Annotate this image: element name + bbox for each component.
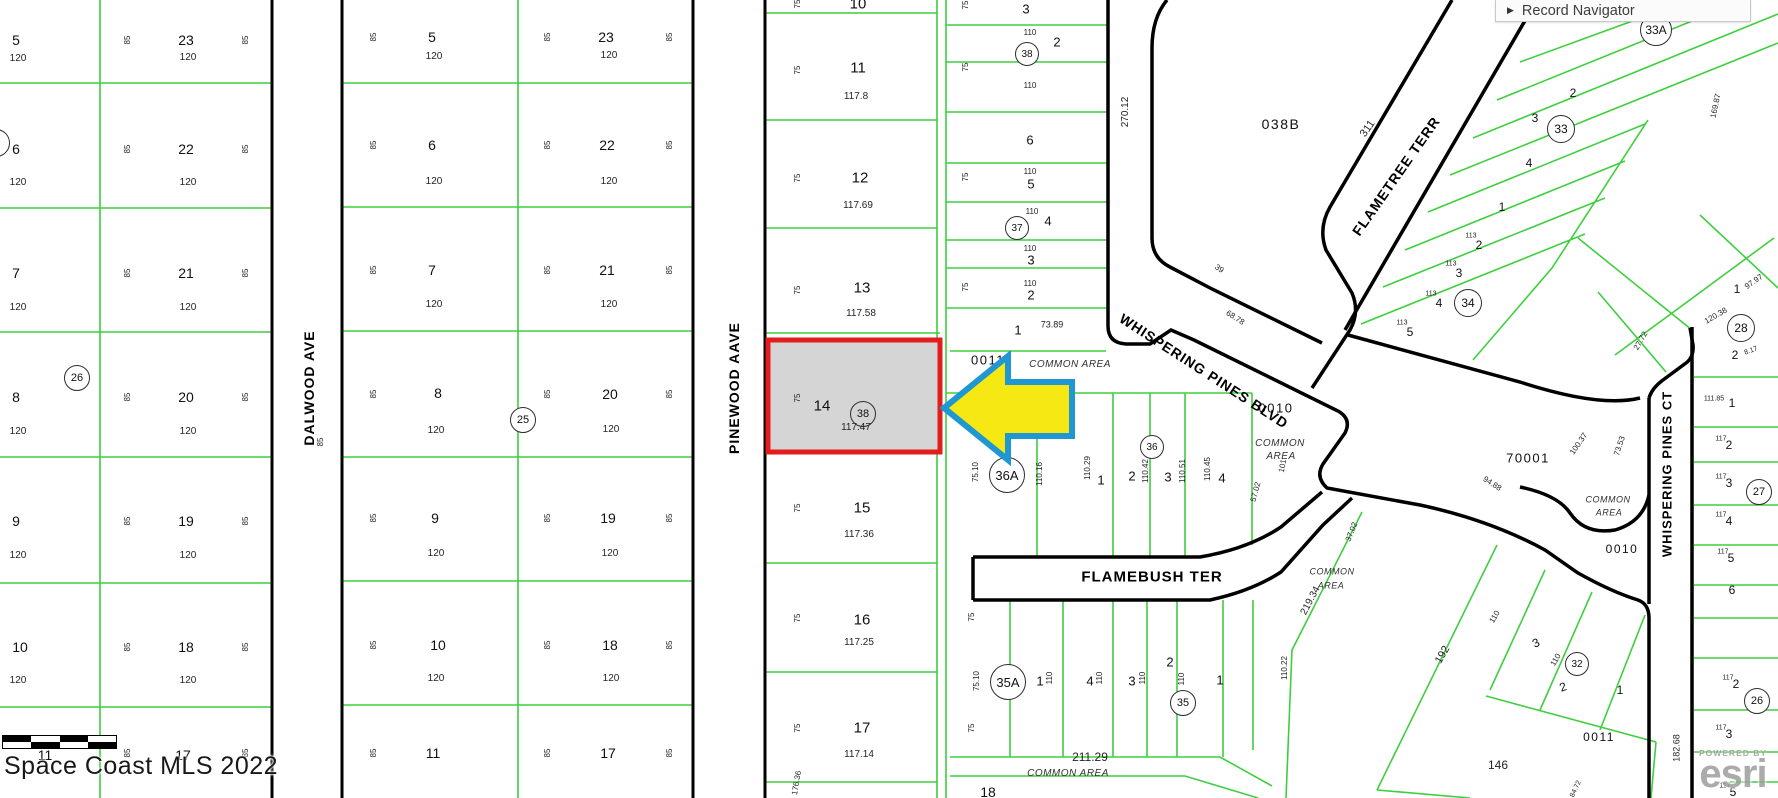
block-number-circle: 38 [1015,42,1039,66]
dimension-label: 85 [124,269,132,278]
lot-number-label: 8 [434,386,442,400]
dimension-label: 270.12 [1121,97,1131,128]
dimension-label: 120 [601,177,618,187]
dimension-label: 85 [242,269,250,278]
lot-number-label: 3 [1164,471,1171,484]
lot-number-label: 1 [1014,324,1021,337]
dimension-label: 120 [10,427,27,437]
lot-number-label: 10 [12,640,28,654]
lot-number-label: 3 [1128,675,1135,688]
lot-number-label: 1 [1499,201,1506,213]
lot-number-label: 18 [178,640,194,654]
dimension-label: 85 [544,641,552,650]
common-area-label: COMMON AREA [1029,360,1111,370]
block-number-circle: 28 [1727,314,1755,342]
tract-number-label: 0011 [971,354,1005,367]
lot-number-label: 1 [1216,674,1223,687]
lot-number-label: 6 [1729,584,1736,596]
dimension-label: 117.36 [844,530,874,540]
street-name-label: DALWOOD AVE [302,330,316,445]
dimension-label: 117 [1717,549,1728,556]
block-number-circle: 25 [510,407,536,433]
dimension-label: 120 [426,52,443,62]
dimension-label: 120 [428,426,445,436]
dimension-label: 85 [124,643,132,652]
lot-number-label: 10 [850,0,867,12]
lot-number-label: 5 [12,33,20,47]
dimension-label: 85 [124,517,132,526]
dimension-label: 110 [1178,673,1186,686]
dimension-label: 110 [1024,29,1037,37]
record-navigator-label: Record Navigator [1522,3,1635,19]
common-area-label: AREA [1266,452,1295,462]
plat-map-canvas[interactable]: 5678910111201201201201201202322212019181… [0,0,1778,798]
dimension-label: 111.85 [1704,396,1724,403]
dimension-label: 113 [1425,291,1436,298]
dimension-label: 117 [1715,436,1726,443]
lot-number-label: 3 [1726,728,1733,740]
common-area-label: COMMON AREA [1027,769,1109,779]
lot-number-label: 11 [426,746,441,760]
dimension-label: 85 [544,514,552,523]
lot-number-label: 1 [1617,684,1624,696]
dimension-label: 75 [794,174,802,183]
dimension-label: 110.51 [1179,459,1187,483]
dimension-label: 146 [1488,759,1508,771]
lot-number-label: 13 [854,281,871,296]
esri-logo: POWERED BY esri [1688,748,1778,791]
lot-number-label: 2 [1128,470,1135,483]
dimension-label: 85 [544,33,552,42]
dimension-label: 85 [124,36,132,45]
lot-number-label: 17 [854,721,871,736]
block-number-circle: 38 [850,401,876,427]
lot-number-label: 17 [600,746,616,760]
dimension-label: 75 [794,286,802,295]
lot-number-label: 5 [428,30,436,44]
block-number-circle: 35A [990,664,1026,700]
lot-number-label: 11 [850,61,866,76]
lot-number-label: 23 [178,33,194,47]
dimension-label: 75.10 [972,462,980,482]
lot-number-label: 18 [602,638,618,652]
dimension-label: 75 [962,1,970,10]
lot-number-label: 3 [1726,477,1733,489]
lot-number-label: 7 [12,266,20,280]
dimension-label: 120 [10,303,27,313]
dimension-label: 120 [602,549,619,559]
dimension-label: 117 [1715,725,1726,732]
dimension-label: 211.29 [1072,751,1108,763]
dimension-label: 85 [666,749,674,758]
dimension-label: 110 [1024,168,1037,176]
lot-number-label: 21 [178,266,194,280]
common-area-label: AREA [1318,582,1345,591]
lot-number-label: 1 [1097,474,1104,487]
dimension-label: 110 [1139,672,1147,685]
dimension-label: 120 [601,51,618,61]
dimension-label: 75 [962,173,970,182]
dimension-label: 120 [180,676,197,686]
dimension-label: 113 [1445,261,1456,268]
mls-watermark: Space Coast MLS 2022 [4,752,278,781]
dimension-label: 117 [1715,474,1726,481]
street-name-label: WHISPERING PINES CT [1661,391,1674,557]
lot-number-label: 15 [854,501,871,516]
lot-number-label: 10 [430,638,446,652]
dimension-label: 85 [242,643,250,652]
lot-number-label: 5 [1027,178,1034,191]
dimension-label: 120 [603,425,620,435]
dimension-label: 110.42 [1142,459,1150,483]
dimension-label: 85 [124,393,132,402]
dimension-label: 85 [370,641,378,650]
lot-number-label: 12 [852,171,869,186]
dimension-label: 120 [10,676,27,686]
lot-number-label: 2 [1053,36,1060,49]
dimension-label: 75 [794,0,802,8]
dimension-label: 120 [428,549,445,559]
dimension-label: 117.25 [844,638,874,648]
common-area-label: COMMON [1310,568,1355,577]
lot-number-label: 16 [854,613,871,628]
dimension-label: 85 [370,749,378,758]
lot-number-label: 22 [178,142,194,156]
tract-number-label: 0011 [1583,731,1615,743]
lot-number-label: 2 [1166,656,1173,669]
block-number-circle: 27 [1746,479,1772,505]
dimension-label: 73.89 [1041,321,1064,330]
tract-number-label: 70001 [1506,452,1550,465]
lot-number-label: 3 [1456,267,1463,279]
lot-number-label: 18 [980,785,996,798]
common-area-label: COMMON [1255,439,1305,449]
lot-number-label: 8 [12,390,20,404]
lot-number-label: 19 [178,514,194,528]
dimension-label: 85 [242,145,250,154]
dimension-label: 120 [180,551,197,561]
lot-number-label: 5 [1728,552,1735,564]
dimension-label: 120 [428,674,445,684]
lot-number-label: 20 [178,390,194,404]
lot-number-label: 9 [431,511,439,525]
lot-number-label: 23 [598,30,614,44]
lot-number-label: 4 [1044,215,1051,228]
lot-number-label: 4 [1086,675,1093,688]
dimension-label: 75 [794,66,802,75]
block-number-circle: 32 [1565,652,1589,676]
lot-number-label: 4 [1526,157,1533,169]
dimension-label: 113 [1465,233,1476,240]
lot-number-label: 2 [1476,239,1483,251]
block-number-circle: 26 [1744,688,1770,714]
dimension-label: 110 [1024,82,1037,90]
dimension-label: 117.8 [844,92,868,102]
dimension-label: 120 [10,551,27,561]
dimension-label: 75 [968,613,976,622]
dimension-label: 85 [370,266,378,275]
dimension-label: 85 [370,33,378,42]
street-name-label: FLAMEBUSH TER [1081,570,1222,585]
lot-number-label: 1 [1734,283,1741,295]
lot-number-label: 2 [1732,349,1739,361]
lot-number-label: 2 [1570,87,1577,99]
lot-number-label: 1 [1729,397,1736,409]
dimension-label: 120 [10,178,27,188]
lot-number-label: 6 [12,142,20,156]
lot-number-label: 2 [1726,439,1733,451]
dimension-label: 120 [426,177,443,187]
block-number-circle: 26 [64,365,90,391]
block-number-circle: 35 [1170,690,1196,716]
dimension-label: 75 [794,394,802,403]
dimension-label: 85 [370,390,378,399]
map-scale-bar [2,735,117,749]
dimension-label: 110.16 [1036,462,1044,486]
common-area-label: COMMON [1586,496,1631,505]
lot-number-label: 4 [1436,297,1443,309]
lot-number-label: 3 [1532,112,1539,124]
dimension-label: 85 [317,438,325,447]
lot-number-label: 22 [599,138,615,152]
dimension-label: 120 [180,303,197,313]
street-name-label: PINEWOOD AAVE [727,322,741,454]
dimension-label: 85 [544,390,552,399]
lot-number-label: 21 [599,263,615,277]
dimension-label: 85 [242,517,250,526]
esri-brand-label: esri [1688,758,1778,791]
lot-number-label: 7 [428,263,436,277]
record-navigator-panel[interactable]: ▶ Record Navigator [1495,0,1751,22]
common-area-label: AREA [1596,509,1623,518]
dimension-label: 120 [603,674,620,684]
dimension-label: 85 [666,33,674,42]
block-number-circle: 37 [1005,216,1029,240]
block-number-circle: 33 [1547,115,1575,143]
dimension-label: 75 [794,614,802,623]
dimension-label: 110 [1046,672,1054,685]
lot-number-label: 5 [1407,326,1414,338]
dimension-label: 182.68 [1673,734,1682,762]
dimension-label: 120 [180,53,197,63]
dimension-label: 85 [666,266,674,275]
dimension-label: 117 [1715,512,1726,519]
lot-number-label: 14 [814,399,831,414]
tract-number-label: 038B [1262,117,1301,131]
dimension-label: 110 [1096,672,1104,685]
dimension-label: 85 [666,390,674,399]
dimension-label: 110.29 [1084,456,1092,480]
dimension-label: 85 [544,749,552,758]
lot-number-label: 1 [1036,675,1043,688]
lot-number-label: 3 [1022,3,1029,16]
dimension-label: 85 [666,641,674,650]
lot-number-label: 3 [1027,254,1034,267]
dimension-label: 117 [1722,675,1733,682]
dimension-label: 75 [794,504,802,513]
lot-number-label: 4 [1218,472,1225,485]
dimension-label: 110 [1026,208,1039,216]
lot-number-label: 2 [1733,678,1740,690]
dimension-label: 85 [370,141,378,150]
dimension-label: 120 [180,427,197,437]
parcel-line-layer [0,0,1778,798]
dimension-label: 75.10 [973,671,981,691]
dimension-label: 117.14 [844,750,874,760]
dimension-label: 113 [1396,320,1407,327]
dimension-label: 85 [544,266,552,275]
block-number-circle: 36 [1140,435,1164,459]
dimension-label: 85 [242,393,250,402]
dimension-label: 85 [124,145,132,154]
dimension-label: 85 [242,36,250,45]
dimension-label: 117.69 [843,201,873,211]
dimension-label: 120 [10,54,27,64]
tract-number-label: 0010 [1606,543,1639,555]
dimension-label: 85 [544,141,552,150]
lot-number-label: 6 [428,138,436,152]
lot-number-label: 9 [12,514,20,528]
dimension-label: 85 [370,514,378,523]
lot-number-label: 2 [1027,289,1034,302]
lot-number-label: 6 [1026,134,1033,147]
block-number-circle: 36A [989,457,1025,493]
lot-number-label: 20 [602,387,618,401]
dimension-label: 110.45 [1204,457,1212,481]
dimension-label: 75 [968,724,976,733]
dimension-label: 120 [426,300,443,310]
expand-chevron-icon[interactable]: ▶ [1507,5,1514,16]
dimension-label: 110.22 [1281,656,1289,680]
dimension-label: 120 [601,300,618,310]
block-number-circle: 34 [1454,289,1482,317]
dimension-label: 85 [666,141,674,150]
dimension-label: 75 [962,283,970,292]
lot-number-label: 19 [600,511,616,525]
dimension-label: 75 [794,724,802,733]
lot-number-label: 4 [1726,515,1733,527]
dimension-label: 117.58 [846,309,876,319]
dimension-label: 85 [666,514,674,523]
dimension-label: 120 [180,178,197,188]
dimension-label: 75 [962,63,970,72]
